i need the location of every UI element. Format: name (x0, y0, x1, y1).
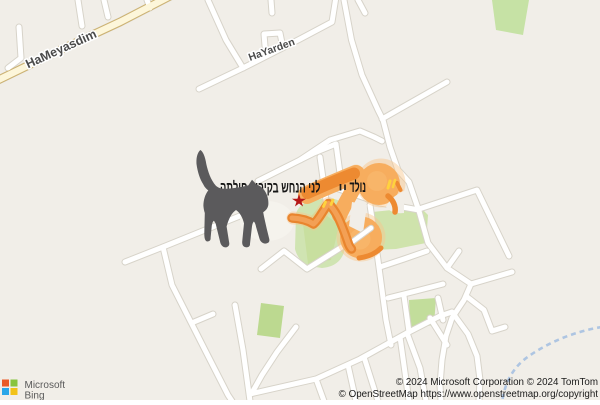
svg-text:Bing: Bing (25, 391, 45, 401)
svg-text:© 2024 Microsoft Corporation ©: © 2024 Microsoft Corporation © 2024 TomT… (396, 377, 598, 388)
svg-text:Microsoft: Microsoft (25, 380, 66, 391)
svg-text:נולד: נולד (350, 179, 367, 196)
svg-text:© OpenStreetMap https://www.op: © OpenStreetMap https://www.openstreetma… (339, 389, 599, 400)
